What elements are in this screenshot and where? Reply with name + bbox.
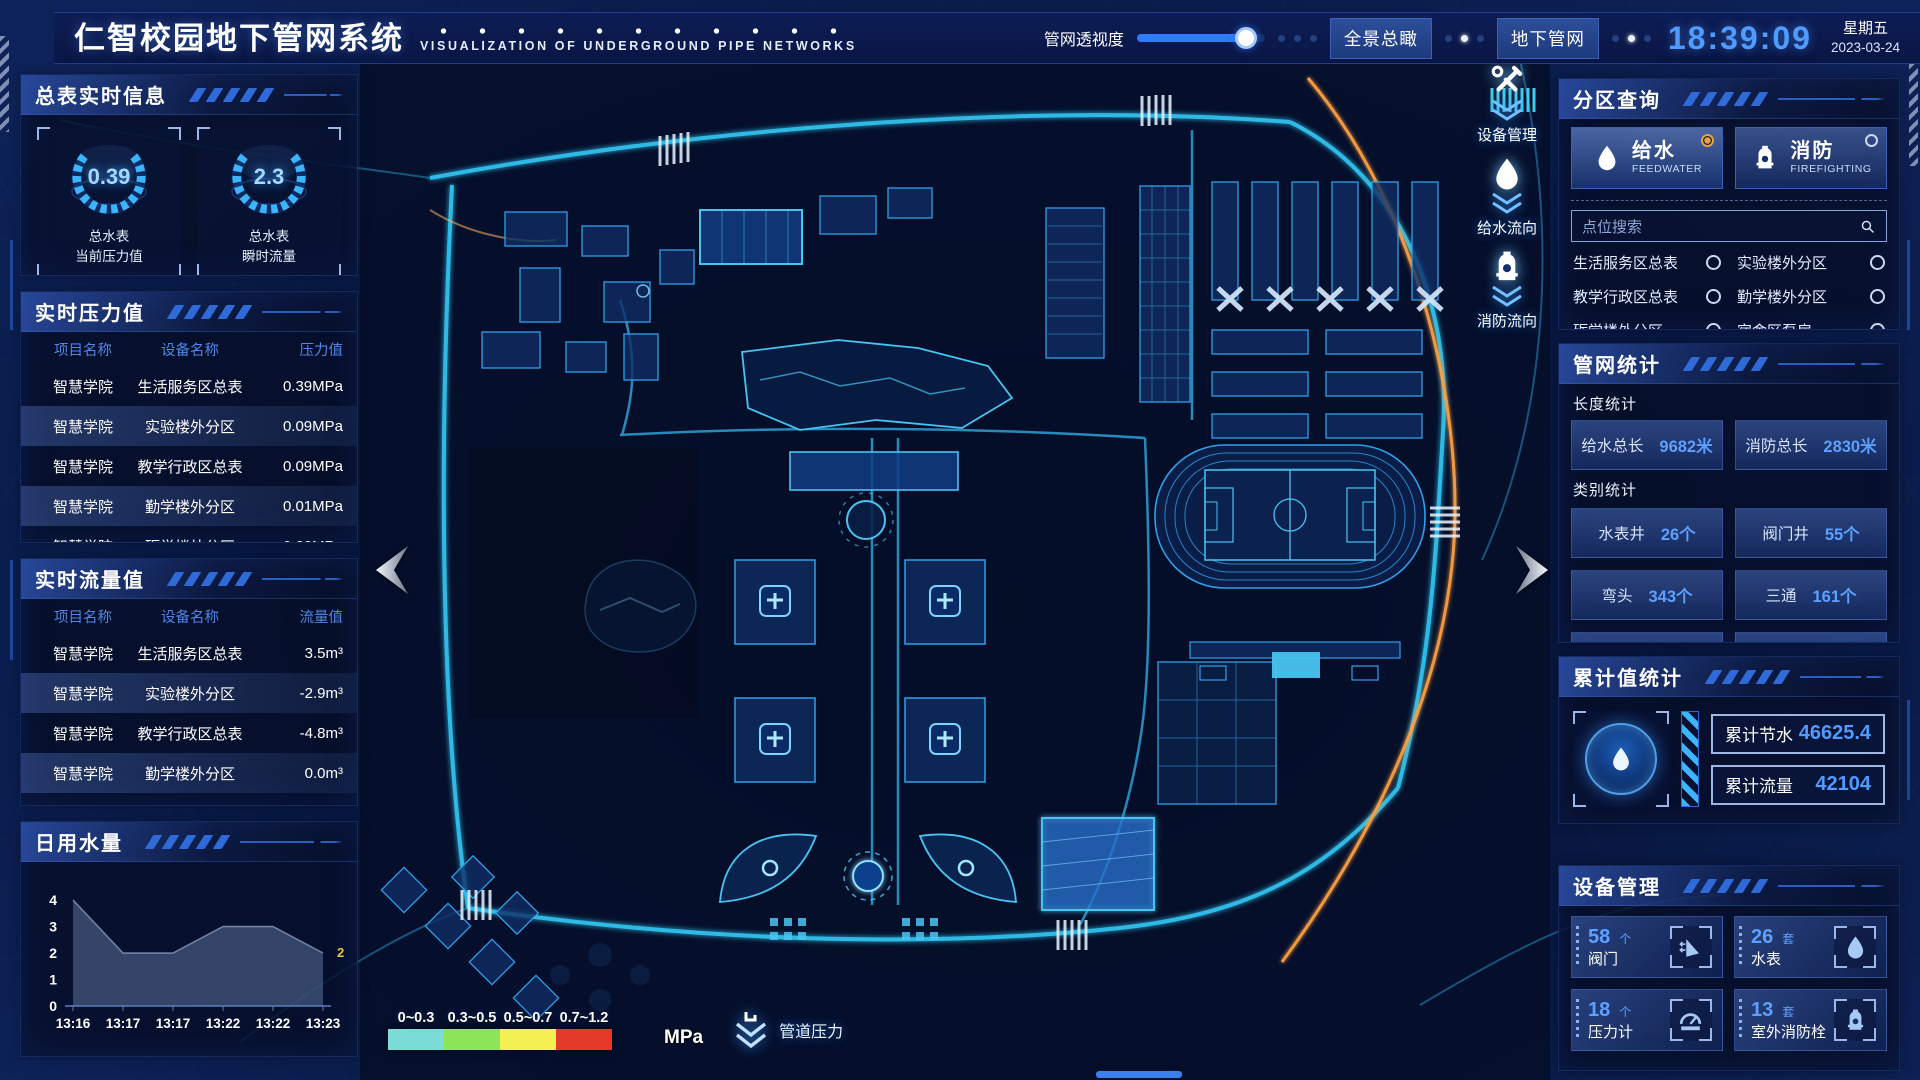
valve-icon [1677,934,1704,961]
legend-range-label: 0.3~0.5 [444,1010,500,1026]
panel-title: 总表实时信息 [35,80,167,109]
stat-value: 55个 [1825,521,1860,545]
table-cell: 智慧学院 [35,496,131,517]
svg-text:13:16: 13:16 [56,1016,91,1031]
chevron-stack-icon [1490,190,1524,216]
slash-decoration [193,88,270,102]
panel-device-management: 设备管理 58个阀门26套水表18个压力计13套室外消防栓 [1558,865,1900,1071]
radio-indicator [1865,134,1878,147]
gauge-value: 0.39 [67,135,151,219]
map-control-0[interactable]: 设备管理 [1477,62,1537,155]
table-cell: 0.09MPa [249,458,343,475]
map-overlay-controls: 设备管理给水流向消防流向 [1464,62,1550,341]
panel-daily-water: 日用水量 0123413:1613:1713:1713:2213:2213:23… [20,821,358,1057]
daily-water-chart: 0123413:1613:1713:1713:2213:2213:232 [27,866,353,1038]
page-title: 仁智校园地下管网系统 [74,23,404,54]
flow-table-row[interactable]: 智慧学院教学行政区总表-4.8m³ [21,713,357,753]
radio-icon [1870,289,1885,304]
zone-options: 生活服务区总表实验楼外分区教学行政区总表勤学楼外分区砺学楼外分区宿舍区泵房 [1559,242,1899,330]
device-unit: 个 [1619,1005,1631,1019]
zone-option[interactable]: 生活服务区总表 [1573,252,1721,273]
right-column: 分区查询 给水FEEDWATER消防FIREFIGHTING 点位搜索 生活服务… [1558,78,1900,1071]
stat-value: 343个 [1648,583,1692,607]
panel-header: 实时压力值 [21,292,357,332]
header-line [1778,885,1885,887]
table-cell: -4.8m³ [249,725,343,742]
svg-text:1: 1 [49,972,57,988]
cumulative-water-saved: 累计节水 46625.4 [1711,714,1885,754]
legend-unit: MPa [664,1027,703,1050]
column-header: 项目名称 [35,606,131,627]
water-drop-icon [1842,934,1869,961]
table-cell: -2.9m³ [249,685,343,702]
column-header: 设备名称 [131,339,249,360]
radio-icon [1706,289,1721,304]
zone-tab-sublabel: FIREFIGHTING [1790,163,1871,175]
header-line [262,311,343,313]
svg-text:4: 4 [49,892,57,908]
device-grid: 58个阀门26套水表18个压力计13套室外消防栓 [1559,906,1899,1051]
zone-tab-sublabel: FEEDWATER [1632,163,1702,175]
map-control-2[interactable]: 消防流向 [1477,248,1537,341]
zone-option[interactable]: 砺学楼外分区 [1573,320,1721,330]
stat-card: 阀门井55个 [1735,508,1887,558]
clock: 18:39:09 [1668,20,1812,57]
table-cell: 砺学楼外分区 [131,803,249,807]
slash-decoration [1687,92,1764,106]
device-unit: 套 [1782,1005,1794,1019]
panel-pipe-stats: 管网统计 长度统计 给水总长9682米消防总长2830米 类别统计 水表井26个… [1558,343,1900,643]
slash-decoration [171,572,248,586]
date: 2023-03-24 [1831,39,1900,57]
stat-card: 给水总长9682米 [1571,420,1723,470]
table-cell: 0.09MPa [249,418,343,435]
zone-option[interactable]: 实验楼外分区 [1737,252,1885,273]
header-line [1778,98,1885,100]
slash-decoration [171,305,248,319]
panel-title: 日用水量 [35,827,123,856]
table-cell: 3.5m³ [249,645,343,662]
zone-option-label: 实验楼外分区 [1737,252,1827,273]
device-count: 26 [1751,925,1773,949]
panel-header: 分区查询 [1559,79,1899,119]
water-drop-icon [1488,155,1526,193]
legend-caption: 管道压力 [779,1018,843,1050]
bottom-scroll-indicator[interactable] [1096,1071,1182,1078]
pressure-table-row[interactable]: 智慧学院砺学楼外分区0.00MPa [21,526,357,543]
device-icon-box [1670,926,1712,968]
device-card-室外消防栓[interactable]: 13套室外消防栓 [1734,989,1887,1051]
weekday: 星期五 [1831,19,1900,39]
header-line [240,841,343,843]
panel-realtime-flow: 实时流量值 项目名称设备名称流量值智慧学院生活服务区总表3.5m³智慧学院实验楼… [20,558,358,806]
flow-gauge: 2.3 [227,135,311,219]
table-cell: 勤学楼外分区 [131,763,249,784]
zone-option[interactable]: 勤学楼外分区 [1737,286,1885,307]
top-bar: 仁智校园地下管网系统 VISUALIZATION OF UNDERGROUND … [54,12,1920,64]
map-control-label: 给水流向 [1477,217,1537,238]
gauge-label: 总水表 当前压力值 [75,227,143,266]
column-header: 项目名称 [35,339,131,360]
column-header: 设备名称 [131,606,249,627]
table-header-row: 项目名称设备名称压力值 [21,332,357,366]
stat-label: 弯头 [1601,584,1632,606]
flow-table-row[interactable]: 智慧学院生活服务区总表3.5m³ [21,633,357,673]
svg-text:0: 0 [49,998,57,1014]
pressure-table-row[interactable]: 智慧学院生活服务区总表0.39MPa [21,366,357,406]
zone-option-label: 砺学楼外分区 [1573,320,1663,330]
panel-meter-realtime: 总表实时信息 0.39 总水表 [20,74,358,276]
left-column: 总表实时信息 0.39 总水表 [20,74,358,1057]
table-cell: 智慧学院 [35,456,131,477]
panel-title: 实时压力值 [35,297,145,326]
panel-header: 累计值统计 [1559,657,1899,697]
svg-text:2: 2 [49,945,57,961]
device-card-水表[interactable]: 26套水表 [1734,916,1887,978]
date-block: 星期五 2023-03-24 [1831,19,1900,57]
stat-label: 给水总长 [1581,434,1643,456]
tools-icon [1488,62,1526,100]
zone-tab-label: 消防 [1790,140,1871,163]
legend-range-label: 0~0.3 [388,1010,444,1026]
panel-cumulative: 累计值统计 累计节水 46625.4 累计流量 [1558,656,1900,824]
side-rail [1907,240,1910,330]
svg-text:2: 2 [337,945,344,960]
underground-pipes-button[interactable]: 地下管网 [1497,18,1599,59]
device-label: 压力计 [1588,1024,1662,1042]
page-subtitle: VISUALIZATION OF UNDERGROUND PIPE NETWOR… [420,39,857,53]
table-cell: 生活服务区总表 [131,643,249,664]
pressure-table: 项目名称设备名称压力值智慧学院生活服务区总表0.39MPa智慧学院实验楼外分区0… [21,332,357,543]
pressure-table-row[interactable]: 智慧学院实验楼外分区0.09MPa [21,406,357,446]
hydrant-icon [1750,143,1780,173]
slash-decoration [149,835,226,849]
slider-thumb[interactable] [1235,27,1257,49]
panel-title: 管网统计 [1573,349,1661,378]
cumulative-stats: 累计节水 46625.4 累计流量 42104 [1711,714,1885,805]
legend-color-segment [500,1029,556,1050]
svg-text:13:22: 13:22 [256,1016,291,1031]
water-drop-icon [1592,143,1622,173]
table-cell: 教学行政区总表 [131,456,249,477]
panel-header: 日用水量 [21,822,357,862]
device-card-压力计[interactable]: 18个压力计 [1571,989,1723,1051]
hazard-stripe-divider [1681,711,1699,807]
table-header-row: 项目名称设备名称流量值 [21,599,357,633]
device-icon-box [1670,999,1712,1041]
panel-title: 实时流量值 [35,564,145,593]
side-rail [10,240,13,330]
legend-scale: 0~0.30.3~0.50.5~0.70.7~1.2 [388,1010,612,1050]
stat-label: 阀门井 [1762,522,1809,544]
stat-label: 水表井 [1598,522,1645,544]
legend-color-segment [388,1029,444,1050]
pan-left-arrow[interactable] [368,544,412,596]
dots-decoration [1278,35,1317,42]
table-cell: 砺学楼外分区 [131,536,249,544]
panel-header: 总表实时信息 [21,75,357,115]
table-cell: 智慧学院 [35,416,131,437]
hydrant-icon [1842,1007,1869,1034]
panorama-button[interactable]: 全景总瞰 [1330,18,1432,59]
radio-icon [1870,323,1885,330]
device-card-阀门[interactable]: 58个阀门 [1571,916,1723,978]
page-subtitle-block: VISUALIZATION OF UNDERGROUND PIPE NETWOR… [420,27,857,54]
zone-tabs: 给水FEEDWATER消防FIREFIGHTING [1559,119,1899,189]
device-unit: 套 [1782,932,1794,946]
length-stats: 给水总长9682米消防总长2830米 [1559,420,1899,470]
zone-tab-firefighting[interactable]: 消防FIREFIGHTING [1735,127,1887,189]
flow-table-row[interactable]: 智慧学院勤学楼外分区0.0m³ [21,753,357,793]
meters-body: 0.39 总水表 当前压力值 2 [21,115,357,276]
svg-text:13:17: 13:17 [156,1016,191,1031]
column-header: 压力值 [249,339,343,360]
hazard-stripe-left [0,36,9,132]
brand: 仁智校园地下管网系统 VISUALIZATION OF UNDERGROUND … [54,23,857,54]
device-count: 13 [1751,998,1773,1022]
length-stats-label: 长度统计 [1559,384,1899,420]
zone-option-label: 宿舍区泵房 [1737,320,1812,330]
hydrant-icon [1488,248,1526,286]
svg-text:3: 3 [49,919,57,935]
stat-card: 消防总长2830米 [1735,420,1887,470]
table-cell: 0.00MPa [249,538,343,544]
dots-decoration [420,27,850,35]
panel-title: 分区查询 [1573,84,1661,113]
slash-decoration [1709,670,1786,684]
point-search-input[interactable]: 点位搜索 [1571,210,1887,242]
chevron-stack-icon [1490,97,1524,123]
stat-card: 水表井26个 [1571,508,1723,558]
stat-value: 26个 [1661,521,1696,545]
pressure-table-row[interactable]: 智慧学院教学行政区总表0.09MPa [21,446,357,486]
flow-table: 项目名称设备名称流量值智慧学院生活服务区总表3.5m³智慧学院实验楼外分区-2.… [21,599,357,806]
slider-fill [1137,34,1246,42]
header-line [262,578,343,580]
device-icon-box [1834,926,1876,968]
dots-decoration [1445,35,1484,42]
svg-text:13:23: 13:23 [306,1016,341,1031]
legend-range-label: 0.7~1.2 [556,1010,612,1026]
device-label: 阀门 [1588,951,1662,969]
dashed-divider [1571,200,1887,201]
device-label: 室外消防栓 [1751,1024,1826,1042]
zone-tab-feedwater[interactable]: 给水FEEDWATER [1571,127,1723,189]
zone-option-label: 生活服务区总表 [1573,252,1678,273]
stat-label: 三通 [1765,584,1796,606]
map-control-1[interactable]: 给水流向 [1477,155,1537,248]
cumulative-flow: 累计流量 42104 [1711,765,1885,805]
device-count: 18 [1588,998,1610,1022]
zone-option-label: 勤学楼外分区 [1737,286,1827,307]
table-cell: 智慧学院 [35,763,131,784]
cumulative-body: 累计节水 46625.4 累计流量 42104 [1559,697,1899,821]
table-cell: 生活服务区总表 [131,376,249,397]
svg-text:13:17: 13:17 [106,1016,141,1031]
side-rail [10,560,13,660]
table-cell: 0.0m³ [249,765,343,782]
stat-card-partial [1735,632,1887,643]
table-cell: 智慧学院 [35,376,131,397]
gauge-value: 2.3 [227,135,311,219]
top-controls: 管网透视度 全景总瞰 地下管网 18:39:09 星期五 2023-03-24 [1044,18,1920,59]
zone-option[interactable]: 教学行政区总表 [1573,286,1721,307]
table-cell: 智慧学院 [35,683,131,704]
stat-card: 弯头343个 [1571,570,1723,620]
panel-header: 实时流量值 [21,559,357,599]
table-cell: 勤学楼外分区 [131,496,249,517]
radio-icon [1706,323,1721,330]
chevron-stack-icon [1490,283,1524,309]
slash-decoration [1687,357,1764,371]
table-cell: 智慧学院 [35,536,131,544]
map-control-label: 设备管理 [1477,124,1537,145]
zone-tab-label: 给水 [1632,140,1702,163]
category-stats: 水表井26个阀门井55个弯头343个三通161个 [1559,508,1899,643]
slash-decoration [1687,879,1764,893]
pipe-pressure-icon [733,1010,769,1050]
svg-text:13:22: 13:22 [206,1016,241,1031]
radio-icon [1706,255,1721,270]
table-cell: 0.39MPa [249,378,343,395]
panel-title: 设备管理 [1573,871,1661,900]
gauge-label: 总水表 瞬时流量 [242,227,296,266]
table-cell: 实验楼外分区 [131,683,249,704]
pressure-table-row[interactable]: 智慧学院勤学楼外分区0.01MPa [21,486,357,526]
header-line [284,94,343,96]
legend-bar [388,1029,612,1050]
table-cell: 0.01MPa [249,498,343,515]
flow-table-row[interactable]: 智慧学院实验楼外分区-2.9m³ [21,673,357,713]
legend-range-label: 0.5~0.7 [500,1010,556,1026]
device-label: 水表 [1751,951,1826,969]
panel-realtime-pressure: 实时压力值 项目名称设备名称压力值智慧学院生活服务区总表0.39MPa智慧学院实… [20,291,358,543]
stat-card-partial [1571,632,1723,643]
device-icon-box [1834,999,1876,1041]
radio-indicator [1701,134,1714,147]
pressure-gauge: 0.39 [67,135,151,219]
table-cell: 实验楼外分区 [131,416,249,437]
gauge-card-flow: 2.3 总水表 瞬时流量 [197,127,341,276]
dashboard-root: 仁智校园地下管网系统 VISUALIZATION OF UNDERGROUND … [0,0,1920,1080]
search-icon [1859,218,1876,235]
dots-decoration [1612,35,1651,42]
gauge-card-pressure: 0.39 总水表 当前压力值 [37,127,181,276]
device-count: 58 [1588,925,1610,949]
water-drop-icon [1585,723,1657,795]
panel-header: 管网统计 [1559,344,1899,384]
category-stats-label: 类别统计 [1559,470,1899,506]
cumulative-icon-box [1573,711,1669,807]
pan-right-arrow[interactable] [1512,544,1556,596]
zone-option[interactable]: 宿舍区泵房 [1737,320,1885,330]
panel-header: 设备管理 [1559,866,1899,906]
header-line [1800,676,1885,678]
flow-table-row[interactable]: 智慧学院砺学楼外分区2.3m³ [21,793,357,806]
header-line [1778,363,1885,365]
stat-card: 三通161个 [1735,570,1887,620]
zone-option-label: 教学行政区总表 [1573,286,1678,307]
legend-color-segment [556,1029,612,1050]
side-rail [1907,700,1910,800]
pressure-gauge-icon [1677,1007,1704,1034]
stat-value: 161个 [1812,583,1856,607]
pressure-legend: 0~0.30.3~0.50.5~0.70.7~1.2 MPa 管道压力 [388,1010,843,1050]
map-control-label: 消防流向 [1477,310,1537,331]
column-header: 流量值 [249,606,343,627]
transparency-slider[interactable] [1137,34,1265,42]
panel-zone-query: 分区查询 给水FEEDWATER消防FIREFIGHTING 点位搜索 生活服务… [1558,78,1900,330]
table-cell: 智慧学院 [35,643,131,664]
table-cell: 教学行政区总表 [131,723,249,744]
legend-color-segment [444,1029,500,1050]
table-cell: 智慧学院 [35,723,131,744]
stat-value: 2830米 [1823,433,1876,457]
radio-icon [1870,255,1885,270]
table-cell: 2.3m³ [249,805,343,807]
panel-title: 累计值统计 [1573,662,1683,691]
table-cell: 智慧学院 [35,803,131,807]
legend-labels: 0~0.30.3~0.50.5~0.70.7~1.2 [388,1010,612,1026]
stat-value: 9682米 [1659,433,1712,457]
stat-label: 消防总长 [1745,434,1807,456]
transparency-slider-label: 管网透视度 [1044,26,1124,50]
search-placeholder: 点位搜索 [1582,216,1859,237]
device-unit: 个 [1619,932,1631,946]
